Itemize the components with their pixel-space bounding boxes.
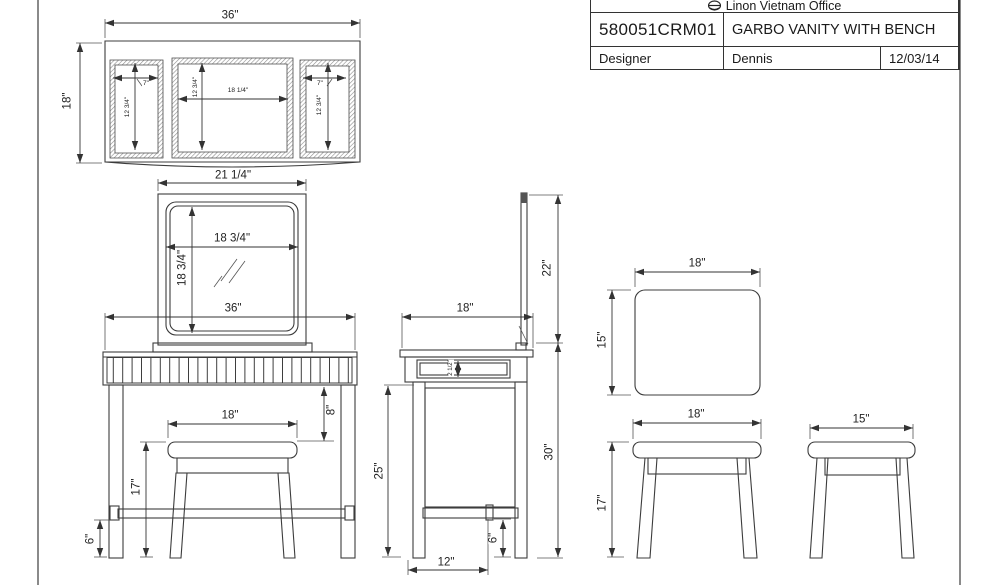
title-block-company-row: Linon Vietnam Office bbox=[590, 0, 958, 13]
dim-label-center-panel-width: 18 1/4" bbox=[227, 88, 249, 95]
bench-left-leg bbox=[637, 458, 657, 558]
vanity-right-leg bbox=[341, 385, 355, 558]
fluted-apron bbox=[107, 358, 352, 384]
title-block-designer-row: Designer Dennis 12/03/14 bbox=[590, 47, 958, 70]
bench-top-view bbox=[607, 268, 760, 395]
side-stretcher bbox=[423, 508, 518, 518]
dim-label-stool-height: 17" bbox=[131, 478, 143, 497]
dim-label-bench-front-height: 17" bbox=[597, 494, 609, 513]
dim-label-mirror-frame-width: 21 1/4" bbox=[214, 170, 252, 182]
dim-label-bench-top-depth: 15" bbox=[597, 331, 609, 350]
stool-frame bbox=[177, 458, 288, 473]
left-mirror-panel bbox=[110, 60, 163, 158]
bench-cushion bbox=[633, 442, 761, 458]
vanity-side-view bbox=[382, 193, 563, 575]
drawing-lineart bbox=[0, 0, 1006, 585]
stool-right-leg bbox=[278, 473, 295, 558]
glass-reflection-mark bbox=[221, 259, 237, 281]
vanity-left-leg bbox=[109, 385, 123, 558]
title-block-main-row: 580051CRM01 GARBO VANITY WITH BENCH bbox=[590, 13, 958, 47]
stool-left-leg bbox=[170, 473, 187, 558]
glass-reflection-mark bbox=[214, 276, 222, 287]
dim-label-stool-seat-width: 18" bbox=[221, 410, 240, 422]
dim-label-bench-front-width: 18" bbox=[687, 409, 706, 421]
dim-label-mirror-overall-height: 18" bbox=[62, 92, 74, 111]
stool-cushion bbox=[168, 442, 297, 458]
dim-label-table-width: 36" bbox=[224, 303, 243, 315]
title-block: Linon Vietnam Office 580051CRM01 GARBO V… bbox=[590, 0, 960, 70]
dim-label-mirror-overall-width: 36" bbox=[221, 10, 240, 22]
dim-label-depth: 18" bbox=[456, 303, 475, 315]
bench-frame-side bbox=[825, 458, 900, 475]
drawer-face bbox=[420, 363, 507, 375]
dim-label-glass-width: 18 3/4" bbox=[213, 233, 251, 245]
bench-cushion-side bbox=[808, 442, 915, 458]
dim-label-bench-side-depth: 15" bbox=[852, 414, 871, 426]
center-mirror-panel bbox=[172, 58, 293, 158]
dim-label-left-panel-height: 12 3/4" bbox=[125, 96, 132, 118]
right-mirror-panel bbox=[300, 60, 355, 158]
dim-label-table-height: 30" bbox=[544, 443, 556, 462]
dim-label-under-table-height: 25" bbox=[374, 462, 386, 481]
flip-mirror-edge bbox=[521, 193, 527, 345]
bench-side-view bbox=[808, 424, 915, 558]
bench-frame bbox=[648, 458, 746, 474]
dim-label-apron-to-seat: 8" bbox=[326, 404, 338, 416]
designer-name: Dennis bbox=[724, 47, 881, 69]
dim-label-front-stretcher-height: 6" bbox=[85, 533, 97, 545]
designer-label: Designer bbox=[591, 47, 724, 69]
drawing-date: 12/03/14 bbox=[881, 47, 958, 69]
dim-label-bench-top-width: 18" bbox=[688, 258, 707, 270]
side-panel bbox=[425, 388, 515, 507]
dim-label-side-stretcher-height: 6" bbox=[488, 532, 500, 544]
mirror-pedestal bbox=[153, 343, 312, 352]
table-top-side bbox=[400, 350, 533, 357]
dim-label-left-panel-width: 7" bbox=[142, 81, 150, 88]
stretcher-pin bbox=[345, 506, 354, 520]
bench-right-leg bbox=[737, 458, 757, 558]
company-name: Linon Vietnam Office bbox=[726, 0, 842, 13]
bench-side-front-leg bbox=[896, 458, 914, 558]
vanity-stretcher bbox=[118, 509, 345, 518]
dim-label-right-panel-width: 7" bbox=[316, 81, 324, 88]
dim-label-mirror-above-table: 22" bbox=[542, 259, 554, 278]
product-name: GARBO VANITY WITH BENCH bbox=[724, 13, 958, 46]
mirror-bottom-bow bbox=[105, 162, 360, 167]
dim-label-right-panel-height: 12 3/4" bbox=[317, 94, 324, 116]
linon-logo-icon bbox=[708, 0, 721, 11]
side-front-leg bbox=[515, 382, 527, 558]
flip-mirror-cap bbox=[521, 193, 528, 203]
dim-label-drawer-height: 2 1/2" bbox=[448, 359, 454, 376]
side-back-leg bbox=[413, 382, 425, 558]
glass-reflection-mark bbox=[229, 261, 245, 283]
drawing-sheet: Linon Vietnam Office 580051CRM01 GARBO V… bbox=[0, 0, 1006, 585]
part-number: 580051CRM01 bbox=[591, 13, 724, 46]
bench-front-view bbox=[607, 419, 761, 558]
dim-label-foot-span: 12" bbox=[437, 557, 456, 569]
bench-seat-top bbox=[635, 290, 760, 395]
dim-label-glass-height: 18 3/4" bbox=[177, 249, 189, 287]
dim-label-center-panel-height: 12 3/4" bbox=[193, 76, 200, 98]
